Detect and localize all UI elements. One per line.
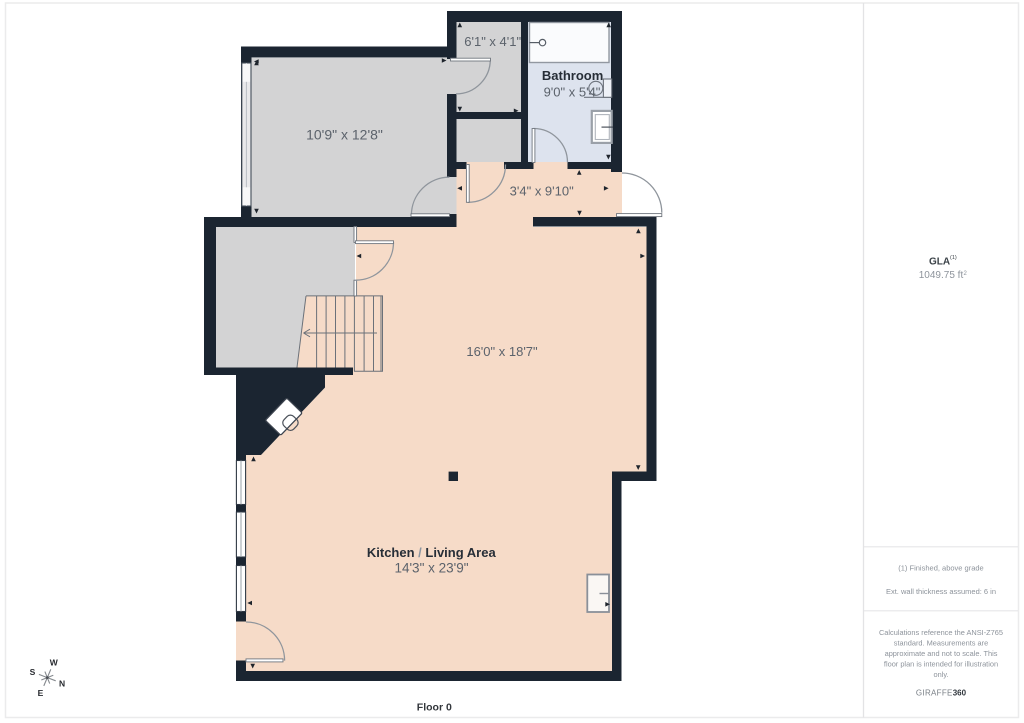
svg-text:Kitchen / Living Area: Kitchen / Living Area <box>367 545 497 560</box>
svg-text:GIRAFFE360: GIRAFFE360 <box>916 689 967 698</box>
svg-text:W: W <box>50 657 59 667</box>
svg-text:14'3" x 23'9": 14'3" x 23'9" <box>394 561 468 576</box>
svg-text:(1) Finished, above grade: (1) Finished, above grade <box>898 564 983 573</box>
svg-text:6'1" x 4'1": 6'1" x 4'1" <box>464 34 521 49</box>
svg-text:3'4" x 9'10": 3'4" x 9'10" <box>510 184 574 199</box>
svg-text:9'0" x 5'4": 9'0" x 5'4" <box>544 85 601 100</box>
svg-text:16'0" x 18'7": 16'0" x 18'7" <box>466 344 538 359</box>
svg-text:E: E <box>38 688 44 698</box>
svg-text:only.: only. <box>933 670 948 679</box>
svg-text:Floor 0: Floor 0 <box>417 701 452 713</box>
svg-text:floor plan is intended for ill: floor plan is intended for illustration <box>884 660 998 669</box>
svg-text:approximate and not to scale.: approximate and not to scale. This <box>885 649 998 658</box>
svg-text:S: S <box>30 667 36 677</box>
svg-text:1049.75 ft: 1049.75 ft <box>919 270 964 281</box>
svg-text:Calculations reference the ANS: Calculations reference the ANSI-Z765 <box>879 628 1003 637</box>
svg-text:(1): (1) <box>950 255 957 261</box>
svg-text:standard. Measurements are: standard. Measurements are <box>894 639 988 648</box>
svg-text:Bathroom: Bathroom <box>542 68 603 83</box>
svg-text:GLA: GLA <box>929 256 950 267</box>
svg-text:Ext. wall thickness assumed: 6: Ext. wall thickness assumed: 6 in <box>886 587 996 596</box>
svg-text:N: N <box>59 679 65 689</box>
svg-text:10'9" x 12'8": 10'9" x 12'8" <box>306 127 383 143</box>
